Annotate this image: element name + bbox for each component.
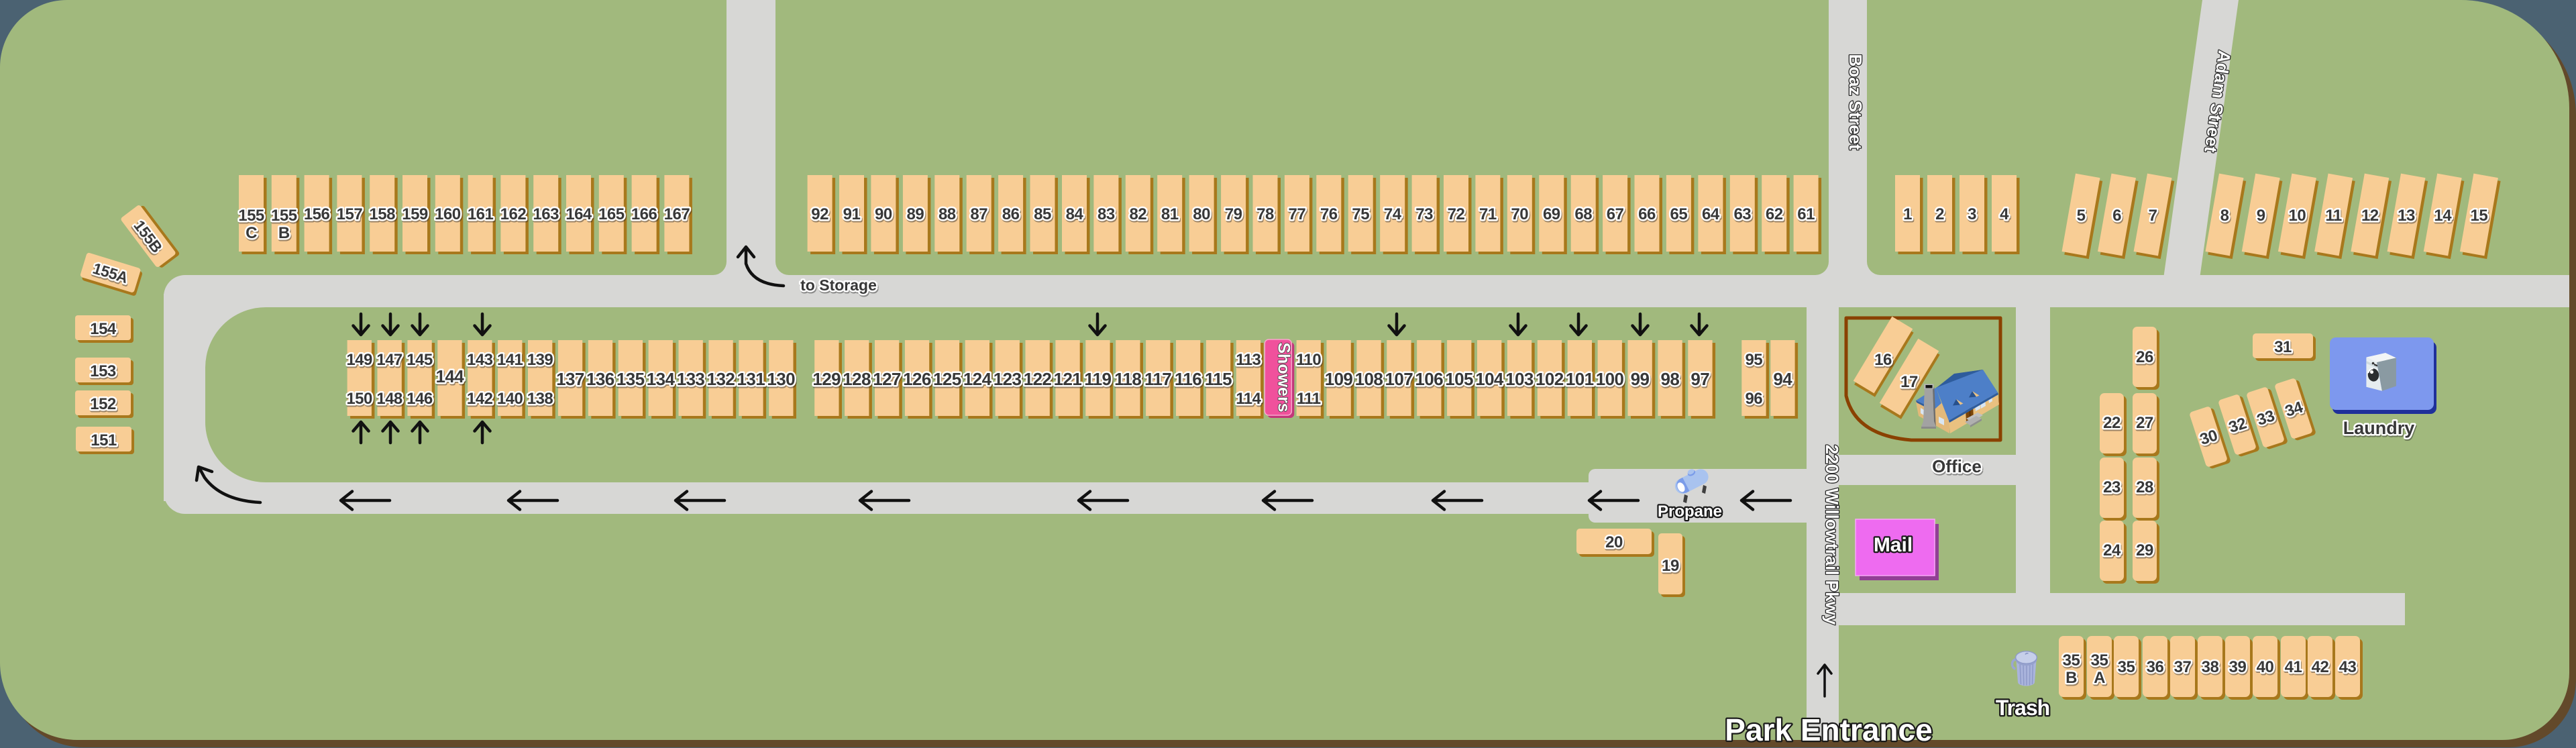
svg-text:101: 101 — [1566, 369, 1594, 389]
svg-text:86: 86 — [1002, 205, 1020, 223]
svg-text:42: 42 — [2312, 658, 2329, 676]
svg-text:117: 117 — [1144, 369, 1171, 389]
svg-text:131: 131 — [737, 369, 765, 389]
svg-text:110: 110 — [1296, 351, 1321, 369]
svg-text:1: 1 — [1903, 205, 1912, 223]
svg-text:113: 113 — [1236, 351, 1260, 369]
svg-text:136: 136 — [586, 369, 614, 389]
svg-text:96: 96 — [1745, 390, 1762, 408]
svg-text:5: 5 — [2077, 207, 2086, 225]
svg-text:68: 68 — [1574, 205, 1592, 223]
svg-text:75: 75 — [1352, 205, 1369, 223]
svg-text:82: 82 — [1129, 205, 1146, 223]
svg-text:97: 97 — [1690, 369, 1709, 389]
svg-text:92: 92 — [811, 205, 828, 223]
svg-text:2200 Willowtrail Pkwy: 2200 Willowtrail Pkwy — [1822, 445, 1842, 625]
svg-text:129: 129 — [812, 369, 841, 389]
svg-text:Office: Office — [1932, 456, 1982, 476]
svg-text:71: 71 — [1479, 205, 1497, 223]
svg-text:123: 123 — [994, 369, 1022, 389]
svg-text:91: 91 — [843, 205, 861, 223]
svg-text:146: 146 — [407, 390, 433, 408]
svg-text:119: 119 — [1084, 369, 1111, 389]
svg-text:95: 95 — [1745, 351, 1762, 369]
svg-text:128: 128 — [843, 369, 871, 389]
svg-text:98: 98 — [1661, 369, 1680, 389]
svg-text:94: 94 — [1773, 369, 1792, 389]
svg-text:158: 158 — [369, 205, 395, 223]
svg-text:87: 87 — [970, 205, 987, 223]
svg-text:9: 9 — [2257, 207, 2265, 225]
svg-text:108: 108 — [1355, 369, 1383, 389]
svg-text:37: 37 — [2174, 658, 2192, 676]
svg-text:Propane: Propane — [1658, 502, 1722, 521]
svg-text:135: 135 — [616, 369, 645, 389]
svg-text:62: 62 — [1766, 205, 1783, 223]
svg-text:40: 40 — [2257, 658, 2274, 676]
svg-text:151: 151 — [91, 431, 117, 449]
svg-text:43: 43 — [2339, 658, 2357, 676]
svg-text:141: 141 — [497, 351, 523, 369]
svg-text:80: 80 — [1193, 205, 1210, 223]
svg-text:127: 127 — [873, 369, 901, 389]
svg-text:63: 63 — [1733, 205, 1751, 223]
svg-text:24: 24 — [2103, 541, 2121, 559]
svg-text:31: 31 — [2274, 338, 2292, 356]
svg-text:66: 66 — [1638, 205, 1656, 223]
svg-text:84: 84 — [1066, 205, 1084, 223]
svg-text:61: 61 — [1797, 205, 1815, 223]
svg-text:15: 15 — [2471, 207, 2488, 225]
svg-text:163: 163 — [533, 205, 559, 223]
svg-text:100: 100 — [1596, 369, 1624, 389]
svg-text:130: 130 — [767, 369, 795, 389]
svg-text:137: 137 — [556, 369, 584, 389]
svg-text:16: 16 — [1874, 351, 1892, 369]
svg-text:144: 144 — [436, 366, 465, 386]
svg-text:77: 77 — [1289, 205, 1306, 223]
svg-text:74: 74 — [1384, 205, 1402, 223]
svg-text:167: 167 — [664, 205, 690, 223]
svg-text:139: 139 — [527, 351, 553, 369]
svg-text:39: 39 — [2229, 658, 2247, 676]
svg-text:107: 107 — [1385, 369, 1413, 389]
svg-text:14: 14 — [2434, 207, 2452, 225]
svg-text:157: 157 — [337, 205, 363, 223]
svg-text:70: 70 — [1511, 205, 1528, 223]
svg-text:7: 7 — [2149, 207, 2157, 225]
svg-text:8: 8 — [2220, 207, 2229, 225]
svg-text:88: 88 — [938, 205, 956, 223]
svg-text:134: 134 — [647, 369, 676, 389]
svg-text:73: 73 — [1415, 205, 1433, 223]
svg-text:124: 124 — [963, 369, 992, 389]
svg-text:13: 13 — [2398, 207, 2415, 225]
svg-text:99: 99 — [1631, 369, 1650, 389]
svg-text:148: 148 — [376, 390, 402, 408]
svg-text:26: 26 — [2136, 348, 2153, 366]
svg-text:4: 4 — [2000, 205, 2009, 223]
svg-text:Trash: Trash — [1996, 696, 2049, 720]
svg-text:147: 147 — [376, 351, 402, 369]
svg-text:152: 152 — [90, 395, 116, 413]
svg-text:67: 67 — [1607, 205, 1624, 223]
svg-text:90: 90 — [875, 205, 892, 223]
svg-text:159: 159 — [402, 205, 428, 223]
svg-text:142: 142 — [467, 390, 493, 408]
svg-text:89: 89 — [907, 205, 924, 223]
svg-text:166: 166 — [631, 205, 657, 223]
svg-text:22: 22 — [2103, 414, 2121, 432]
svg-text:81: 81 — [1161, 205, 1179, 223]
svg-text:104: 104 — [1475, 369, 1504, 389]
svg-text:150: 150 — [346, 390, 372, 408]
svg-text:3: 3 — [1968, 205, 1976, 223]
svg-text:111: 111 — [1297, 390, 1321, 408]
svg-text:11: 11 — [2325, 207, 2342, 225]
svg-text:165: 165 — [598, 205, 625, 223]
svg-text:23: 23 — [2103, 478, 2121, 496]
svg-text:76: 76 — [1320, 205, 1338, 223]
svg-text:79: 79 — [1225, 205, 1242, 223]
svg-text:Boaz Street: Boaz Street — [1845, 54, 1866, 150]
svg-text:102: 102 — [1536, 369, 1564, 389]
svg-text:125: 125 — [933, 369, 961, 389]
svg-text:115: 115 — [1205, 369, 1232, 389]
svg-text:72: 72 — [1448, 205, 1465, 223]
svg-text:133: 133 — [677, 369, 705, 389]
svg-text:20: 20 — [1605, 533, 1623, 551]
svg-text:122: 122 — [1024, 369, 1052, 389]
svg-text:116: 116 — [1175, 369, 1201, 389]
svg-text:143: 143 — [467, 351, 493, 369]
svg-text:156: 156 — [304, 205, 330, 223]
svg-text:109: 109 — [1325, 369, 1353, 389]
svg-text:145: 145 — [407, 351, 433, 369]
svg-text:27: 27 — [2136, 414, 2153, 432]
svg-text:41: 41 — [2285, 658, 2302, 676]
svg-text:Showers: Showers — [1274, 342, 1293, 412]
svg-text:121: 121 — [1054, 369, 1082, 389]
svg-text:to Storage: to Storage — [800, 276, 877, 294]
svg-text:132: 132 — [707, 369, 735, 389]
svg-text:126: 126 — [903, 369, 931, 389]
svg-text:19: 19 — [1662, 557, 1679, 575]
svg-text:105: 105 — [1445, 369, 1473, 389]
svg-text:138: 138 — [527, 390, 553, 408]
svg-text:10: 10 — [2289, 207, 2306, 225]
svg-text:85: 85 — [1034, 205, 1051, 223]
svg-text:28: 28 — [2136, 478, 2153, 496]
svg-text:17: 17 — [1900, 373, 1918, 391]
svg-text:12: 12 — [2361, 207, 2379, 225]
svg-text:38: 38 — [2202, 658, 2219, 676]
svg-text:64: 64 — [1702, 205, 1720, 223]
svg-text:65: 65 — [1670, 205, 1688, 223]
svg-text:69: 69 — [1543, 205, 1560, 223]
svg-text:106: 106 — [1415, 369, 1443, 389]
svg-text:2: 2 — [1935, 205, 1944, 223]
svg-text:149: 149 — [346, 351, 372, 369]
svg-text:161: 161 — [468, 205, 494, 223]
svg-text:83: 83 — [1097, 205, 1115, 223]
svg-text:29: 29 — [2136, 541, 2153, 559]
svg-text:35: 35 — [2118, 658, 2135, 676]
svg-text:140: 140 — [497, 390, 523, 408]
svg-text:118: 118 — [1114, 369, 1141, 389]
svg-text:164: 164 — [566, 205, 592, 223]
svg-text:Laundry: Laundry — [2343, 418, 2415, 438]
svg-text:78: 78 — [1256, 205, 1274, 223]
svg-text:153: 153 — [90, 362, 116, 380]
svg-text:103: 103 — [1505, 369, 1534, 389]
svg-text:36: 36 — [2147, 658, 2164, 676]
svg-text:6: 6 — [2112, 207, 2121, 225]
svg-text:Park Entrance: Park Entrance — [1725, 712, 1932, 747]
svg-text:162: 162 — [500, 205, 527, 223]
svg-text:160: 160 — [435, 205, 461, 223]
svg-text:Mail: Mail — [1874, 534, 1913, 556]
svg-text:154: 154 — [90, 320, 117, 338]
svg-text:114: 114 — [1236, 390, 1261, 408]
